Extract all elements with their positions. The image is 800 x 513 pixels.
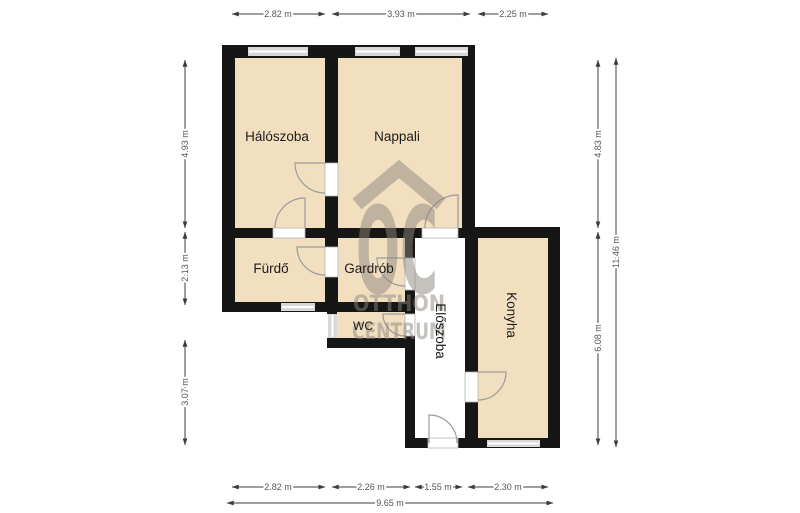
dim-left-3: 3.07 m <box>180 378 190 406</box>
dim-bottom-4: 2.30 m <box>494 482 522 492</box>
dim-top-2: 3.93 m <box>387 9 415 19</box>
dim-bottom-2: 2.26 m <box>357 482 385 492</box>
dim-left-2: 2.13 m <box>180 254 190 282</box>
label-eloszoba: Előszoba <box>433 303 448 359</box>
label-wc: WC <box>353 319 373 333</box>
dim-right-total: 11.46 m <box>611 236 621 268</box>
label-gardrob: Gardrób <box>344 261 394 276</box>
window-nappali-1 <box>355 47 400 56</box>
wall-left <box>222 45 235 312</box>
window-furdo <box>281 303 315 311</box>
window-wc <box>328 314 337 338</box>
window-nappali-2 <box>415 47 468 56</box>
wall-wc-left-stub <box>327 308 337 314</box>
wall-konyha-right <box>548 227 560 448</box>
window-haloszoba <box>248 47 308 56</box>
label-nappali: Nappali <box>374 129 420 144</box>
dim-bottom-1: 2.82 m <box>264 482 292 492</box>
wall-konyha-top <box>462 227 560 238</box>
dim-top-1: 2.82 m <box>264 9 292 19</box>
dim-bottom-3: 1.55 m <box>424 482 452 492</box>
dim-left-1: 4.93 m <box>180 130 190 158</box>
window-konyha <box>487 440 540 447</box>
dim-right-2: 6.08 m <box>593 324 603 352</box>
watermark-line1: OTTHON <box>353 292 445 317</box>
label-konyha: Konyha <box>504 292 519 338</box>
dim-right-1: 4.83 m <box>593 130 603 158</box>
dim-bottom-total: 9.65 m <box>376 498 404 508</box>
wall-eloszoba-left <box>405 348 415 438</box>
dim-top-3: 2.25 m <box>499 9 527 19</box>
floor-plan-canvas: OC OTTHON CENTRUM Hálószoba Nappali Fürd… <box>0 0 800 513</box>
floor-plan-svg: OC OTTHON CENTRUM Hálószoba Nappali Fürd… <box>0 0 800 513</box>
wall-eloszoba-konyha <box>465 238 478 438</box>
opening-haloszoba-furdo <box>273 228 305 238</box>
opening-nappali-haloszoba <box>325 163 338 196</box>
wall-nappali-right <box>462 45 475 238</box>
label-haloszoba: Hálószoba <box>245 129 309 144</box>
opening-konyha-eloszoba <box>465 372 478 402</box>
wall-halo-nappali <box>325 45 338 238</box>
opening-entrance <box>428 438 458 448</box>
label-furdo: Fürdő <box>253 261 288 276</box>
room-konyha-floor <box>478 238 548 438</box>
opening-furdo-gardrob <box>325 247 338 277</box>
